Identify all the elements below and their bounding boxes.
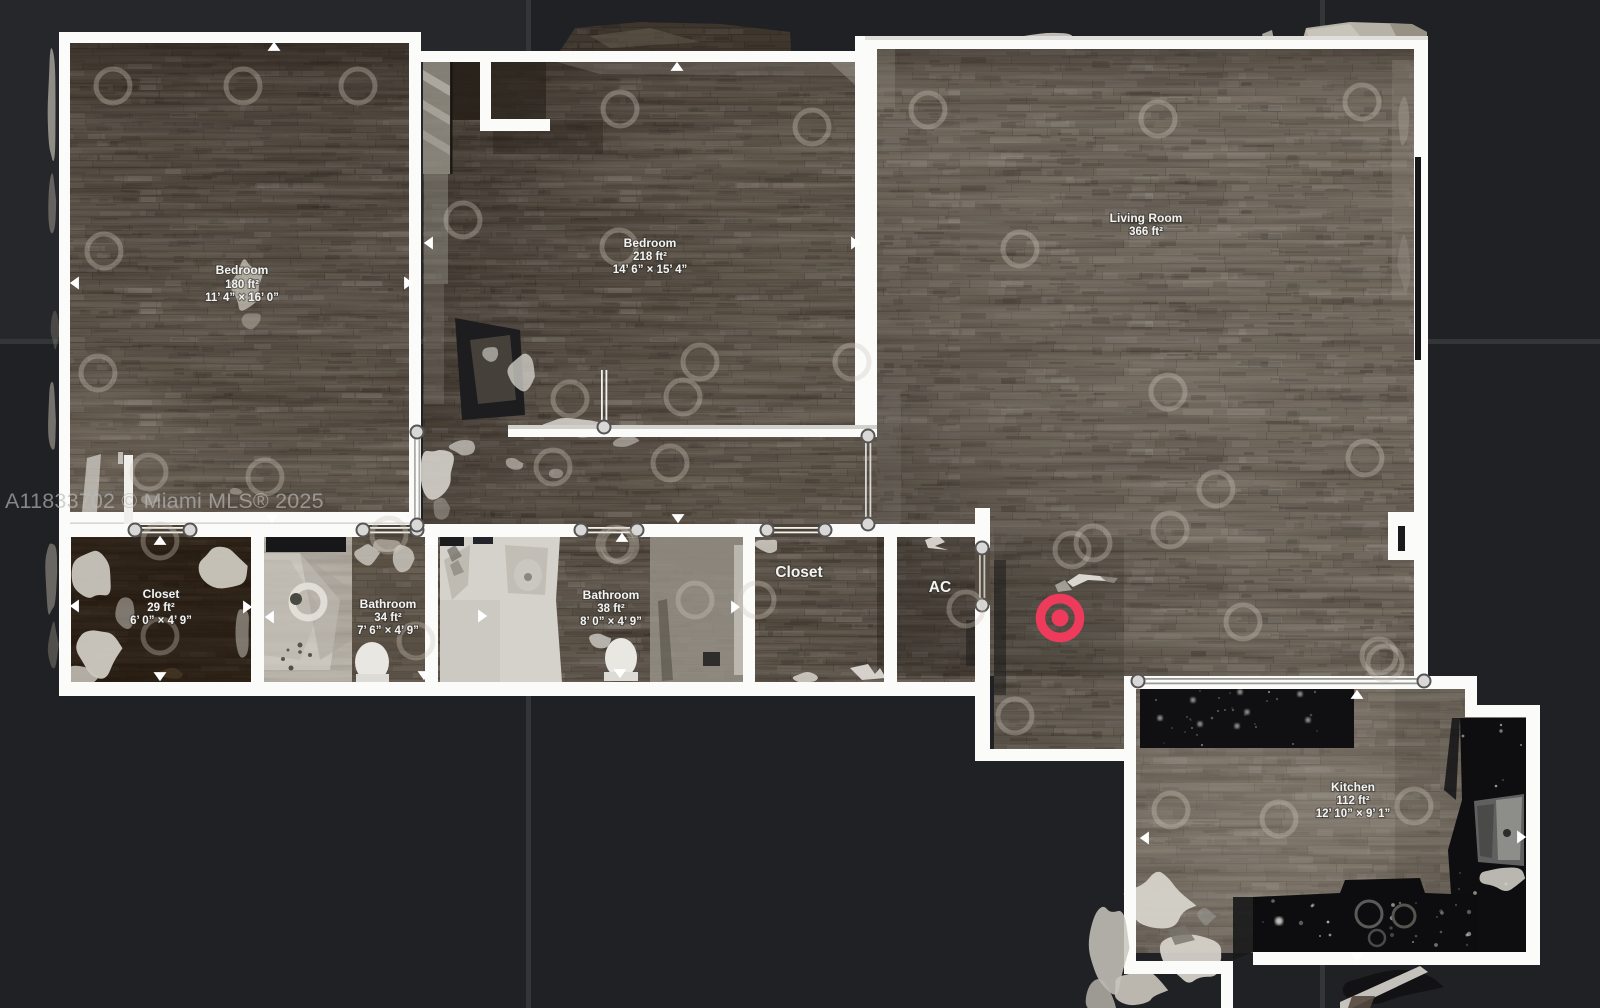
svg-text:Bathroom: Bathroom — [583, 588, 640, 602]
svg-text:Closet: Closet — [775, 564, 822, 581]
svg-text:112 ft²: 112 ft² — [1336, 795, 1369, 807]
svg-text:Closet: Closet — [143, 587, 180, 601]
svg-text:12’ 10” × 9’ 1”: 12’ 10” × 9’ 1” — [1316, 808, 1391, 820]
svg-text:8’ 0” × 4’ 9”: 8’ 0” × 4’ 9” — [580, 616, 642, 628]
svg-text:34 ft²: 34 ft² — [374, 612, 402, 624]
svg-text:Kitchen: Kitchen — [1331, 780, 1375, 794]
svg-text:218 ft²: 218 ft² — [633, 251, 667, 263]
svg-text:7’ 6” × 4’ 9”: 7’ 6” × 4’ 9” — [357, 625, 419, 637]
svg-text:29 ft²: 29 ft² — [147, 602, 175, 614]
svg-text:Living Room: Living Room — [1110, 211, 1183, 225]
svg-text:Bedroom: Bedroom — [624, 236, 677, 250]
svg-text:AC: AC — [929, 579, 951, 596]
svg-text:180 ft²: 180 ft² — [225, 279, 259, 291]
svg-text:11’ 4” × 16’ 0”: 11’ 4” × 16’ 0” — [205, 292, 279, 304]
svg-text:6’ 0” × 4’ 9”: 6’ 0” × 4’ 9” — [130, 615, 192, 627]
svg-text:38 ft²: 38 ft² — [597, 603, 625, 615]
svg-text:A11833702 © Miami MLS® 2025: A11833702 © Miami MLS® 2025 — [5, 489, 324, 513]
svg-text:14’ 6” × 15’ 4”: 14’ 6” × 15’ 4” — [613, 264, 688, 276]
svg-text:Bathroom: Bathroom — [360, 597, 417, 611]
svg-text:366 ft²: 366 ft² — [1129, 226, 1163, 238]
svg-text:Bedroom: Bedroom — [216, 263, 269, 277]
